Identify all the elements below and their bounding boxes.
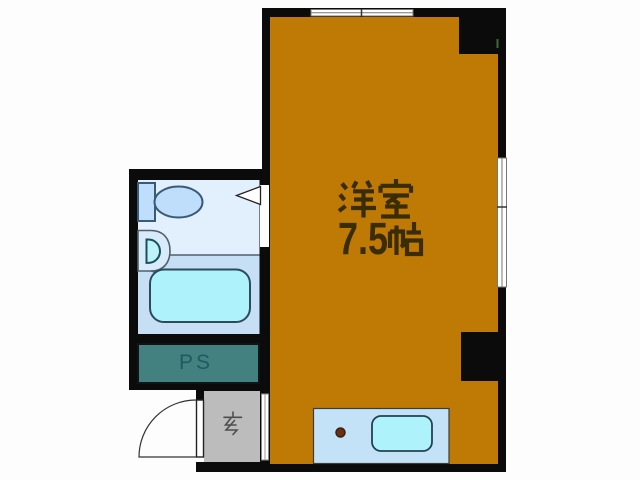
svg-text:PS: PS <box>179 351 213 374</box>
svg-text:7.5: 7.5 <box>338 213 388 264</box>
